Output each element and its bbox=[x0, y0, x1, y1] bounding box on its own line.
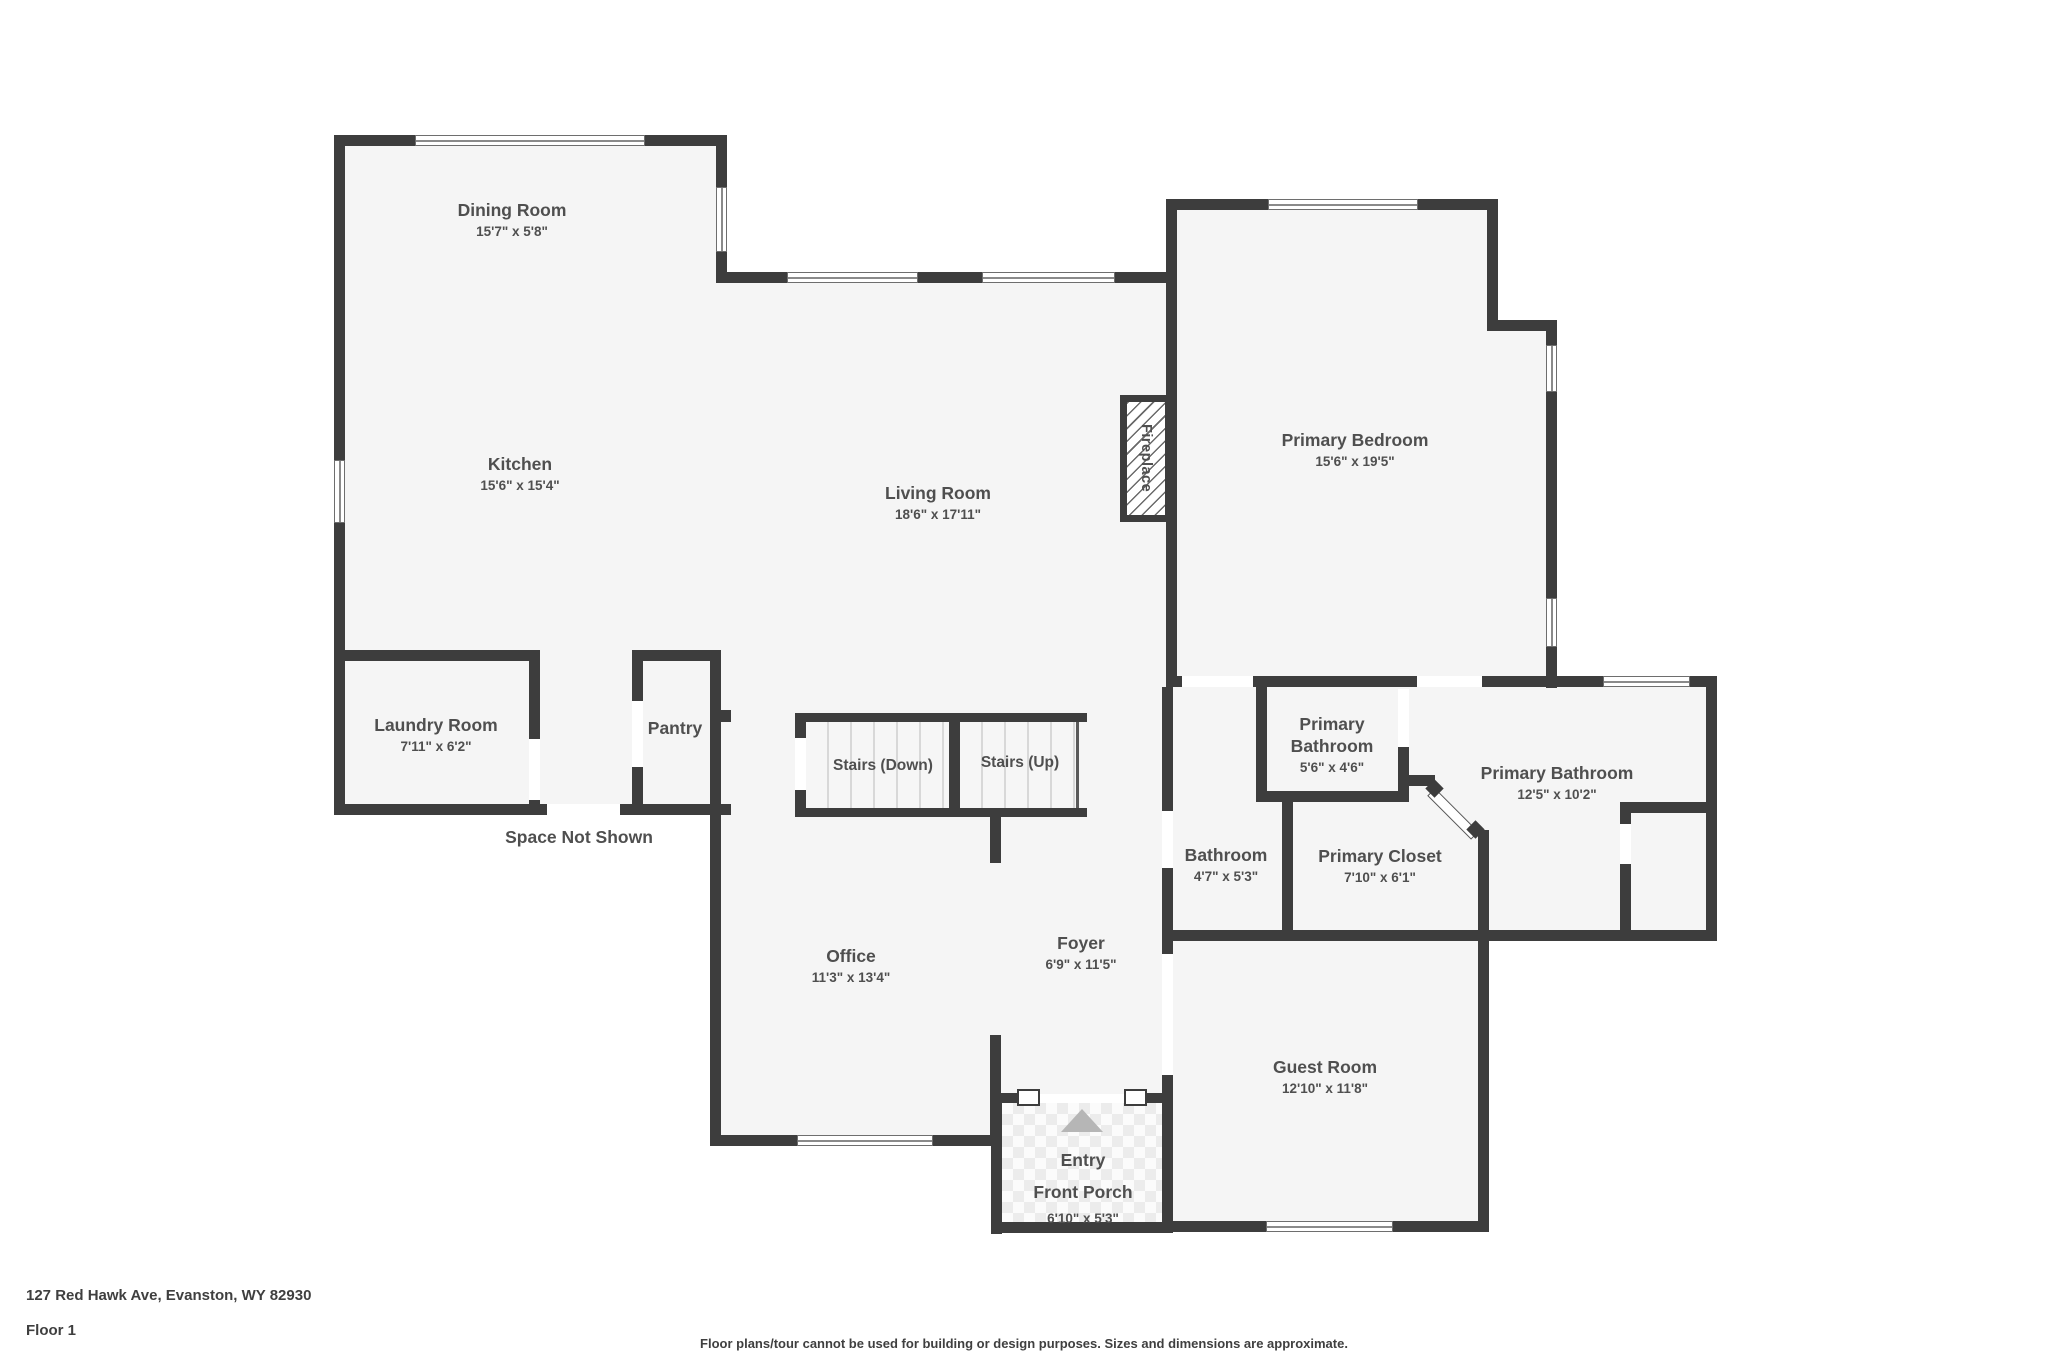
wall bbox=[632, 650, 720, 661]
entry-arrow-icon bbox=[1061, 1109, 1103, 1132]
window bbox=[334, 460, 345, 523]
door-opening bbox=[1398, 689, 1409, 747]
door-opening bbox=[1620, 824, 1631, 864]
window bbox=[1268, 199, 1418, 210]
wall bbox=[991, 1093, 1002, 1234]
wall bbox=[1620, 802, 1717, 813]
window bbox=[1603, 676, 1690, 687]
wall bbox=[632, 650, 643, 701]
footer-address: 127 Red Hawk Ave, Evanston, WY 82930 bbox=[26, 1287, 311, 1304]
room-label-dining-room: Dining Room 15'7" x 5'8" bbox=[458, 199, 567, 241]
room-label-entry-front-porch: Entry Front Porch 6'10" x 5'3" bbox=[1033, 1144, 1132, 1228]
room-label-laundry-room: Laundry Room 7'11" x 6'2" bbox=[374, 714, 497, 756]
wall bbox=[620, 804, 720, 815]
wall bbox=[795, 713, 1087, 722]
door-jamb bbox=[1017, 1089, 1040, 1106]
wall bbox=[1162, 687, 1173, 811]
wall bbox=[795, 790, 806, 817]
door-opening bbox=[548, 804, 620, 815]
door-opening bbox=[795, 738, 806, 790]
window bbox=[787, 272, 918, 283]
wall bbox=[632, 767, 643, 804]
door-jamb bbox=[1124, 1089, 1147, 1106]
wall bbox=[334, 804, 547, 815]
entry-door-opening bbox=[1040, 1094, 1125, 1103]
room-label-primary-bathroom-small: Primary Bathroom 5'6" x 4'6" bbox=[1291, 713, 1374, 777]
wall bbox=[1253, 676, 1418, 687]
wall bbox=[795, 713, 806, 738]
room-label-bathroom: Bathroom 4'7" x 5'3" bbox=[1185, 844, 1268, 886]
wall bbox=[1162, 868, 1173, 954]
room-label-office: Office 11'3" x 13'4" bbox=[812, 945, 891, 987]
room-label-guest-room: Guest Room 12'10" x 11'8" bbox=[1273, 1056, 1377, 1098]
room-label-primary-closet: Primary Closet 7'10" x 6'1" bbox=[1318, 845, 1442, 887]
floor-area bbox=[1162, 687, 1717, 941]
wall bbox=[1620, 802, 1631, 824]
wall bbox=[721, 804, 731, 815]
door-opening bbox=[632, 701, 643, 767]
window bbox=[982, 272, 1115, 283]
wall bbox=[1256, 791, 1409, 802]
window bbox=[716, 187, 727, 252]
room-label-primary-bathroom: Primary Bathroom 12'5" x 10'2" bbox=[1481, 762, 1634, 804]
door-opening bbox=[1182, 676, 1253, 687]
footer-disclaimer: Floor plans/tour cannot be used for buil… bbox=[700, 1336, 1348, 1351]
fireplace-label: Fireplace bbox=[1138, 424, 1154, 492]
wall bbox=[334, 650, 540, 661]
wall bbox=[1487, 199, 1498, 331]
wall bbox=[710, 650, 721, 1146]
wall bbox=[949, 713, 960, 817]
room-label-kitchen: Kitchen 15'6" x 15'4" bbox=[480, 453, 559, 495]
door-opening bbox=[1162, 954, 1173, 1075]
window bbox=[1546, 598, 1557, 647]
stair-edge bbox=[1076, 722, 1079, 808]
floor-plan: Fireplace Dining Room 15'7" x 5'8" Kitch… bbox=[0, 0, 2048, 1365]
room-label-stairs-down: Stairs (Down) bbox=[833, 755, 933, 777]
floor-area bbox=[1488, 331, 1546, 676]
room-label-pantry: Pantry bbox=[648, 717, 702, 739]
wall bbox=[1478, 830, 1489, 1232]
window bbox=[1546, 345, 1557, 392]
window bbox=[797, 1135, 933, 1146]
wall bbox=[529, 650, 540, 739]
room-label-primary-bedroom: Primary Bedroom 15'6" x 19'5" bbox=[1282, 429, 1429, 471]
footer-floor-label: Floor 1 bbox=[26, 1322, 76, 1339]
wall bbox=[1162, 930, 1717, 941]
room-label-living-room: Living Room 18'6" x 17'11" bbox=[885, 482, 991, 524]
room-label-foyer: Foyer 6'9" x 11'5" bbox=[1045, 932, 1116, 974]
window bbox=[415, 135, 645, 146]
door-opening bbox=[529, 739, 540, 800]
wall bbox=[1162, 1075, 1173, 1232]
door-opening bbox=[1417, 676, 1482, 687]
wall bbox=[990, 817, 1001, 863]
space-not-shown-label: Space Not Shown bbox=[505, 826, 653, 848]
wall bbox=[795, 808, 1087, 817]
room-label-stairs-up: Stairs (Up) bbox=[981, 752, 1059, 774]
door-opening bbox=[1162, 811, 1173, 868]
window bbox=[1266, 1221, 1393, 1232]
wall bbox=[721, 710, 731, 722]
wall bbox=[1166, 676, 1182, 687]
wall bbox=[1256, 687, 1267, 802]
fireplace: Fireplace bbox=[1120, 395, 1172, 522]
wall bbox=[1282, 802, 1293, 941]
